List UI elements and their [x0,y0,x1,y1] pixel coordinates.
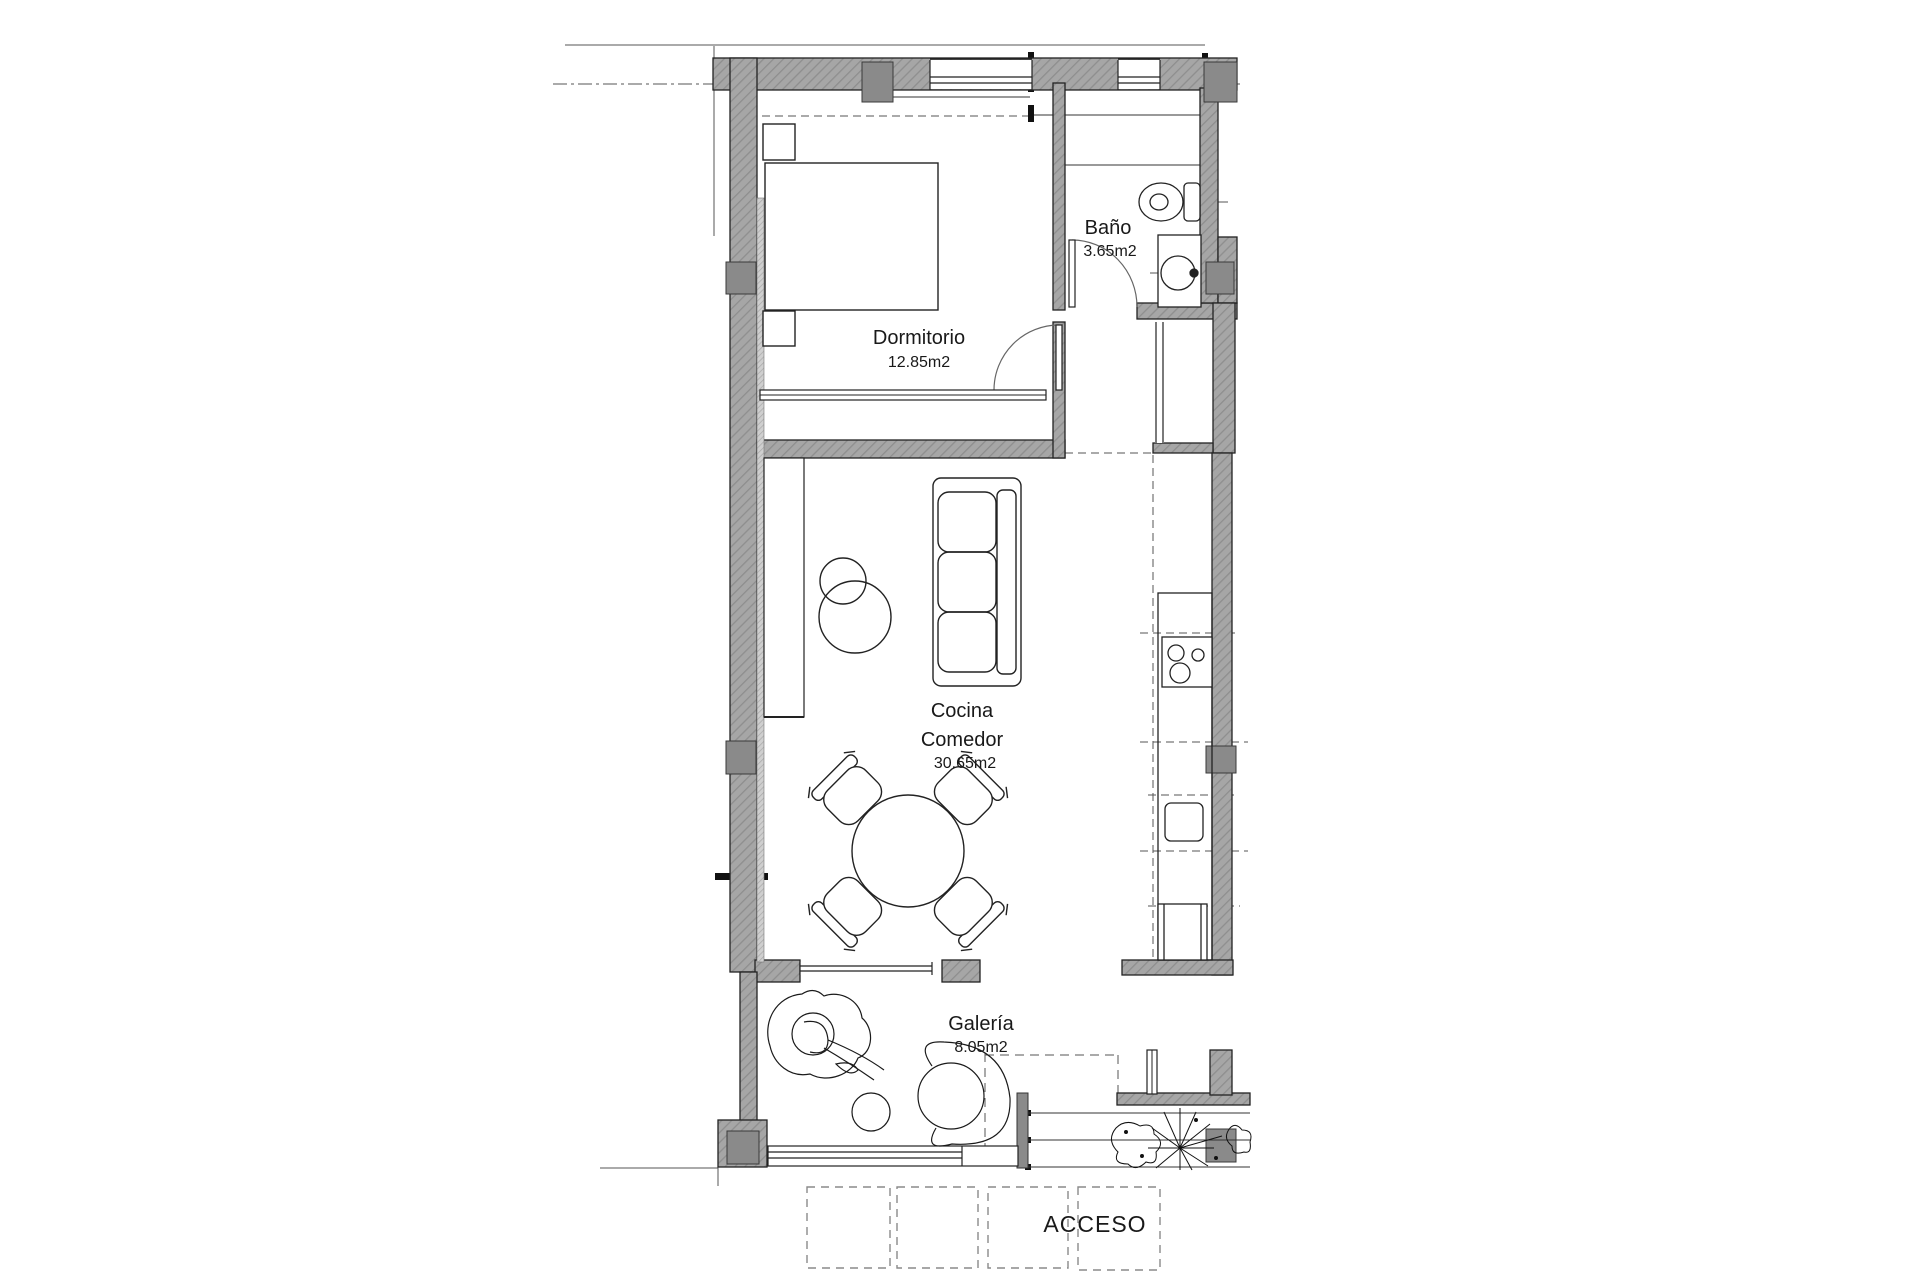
bedroom-door [994,325,1062,390]
label-galeria-area: 8.05m2 [954,1039,1007,1056]
bathroom-fixtures [1139,183,1201,307]
kitchen-sink [1165,803,1203,841]
wall-left [730,58,757,972]
pouf [852,1093,890,1131]
wall-galeria-top-right [942,960,980,982]
porch-post [1147,1050,1157,1094]
wall-kitchen-right [1212,453,1232,975]
column [1204,62,1237,102]
sofa [933,478,1021,686]
label-galeria: Galería [948,1013,1014,1035]
nightstand [763,311,795,346]
floor-plan-drawing: Dormitorio 12.85m2 Baño 3.65m2 Cocina Co… [0,0,1920,1280]
window-bath-top [1118,59,1160,90]
wardrobe [760,390,1046,400]
label-cocina-area: 30.65m2 [934,755,996,772]
window-galeria-salon [800,962,932,975]
sideboard [764,458,804,717]
column [1206,746,1236,773]
column [726,741,756,774]
label-cocina: Cocina [931,700,994,722]
window-bedroom-top [930,59,1032,90]
dining-set [804,747,1013,956]
paving-tile [807,1187,890,1268]
wall-galeria-top-left [755,960,800,982]
coffee-table [819,581,891,653]
wall-kitchen-bottom [1122,960,1233,975]
kitchen-appliance [1158,904,1207,960]
wall-galeria-left [740,972,757,1124]
label-dormitorio-area: 12.85m2 [888,354,950,371]
column [1206,262,1234,294]
column [727,1131,759,1164]
paving-tile [897,1187,978,1268]
living-furniture [764,458,1021,717]
floor-plan-page: Dormitorio 12.85m2 Baño 3.65m2 Cocina Co… [0,0,1920,1280]
label-dormitorio: Dormitorio [873,327,965,349]
column [862,62,893,102]
window-shaft [1155,322,1164,443]
kitchen [1158,593,1212,960]
window-galeria-bottom [768,1146,1018,1166]
room-labels: Dormitorio 12.85m2 Baño 3.65m2 Cocina Co… [873,217,1147,1237]
dining-table [852,795,964,907]
potted-plant [768,991,884,1081]
label-bano-area: 3.65m2 [1083,243,1136,260]
column [726,262,756,294]
label-comedor: Comedor [921,729,1004,751]
round-chair [918,1042,1010,1146]
toilet [1139,183,1200,221]
bed [765,163,938,310]
cooktop [1162,637,1212,687]
nightstand [763,124,795,160]
wall-porch-column [1210,1050,1232,1095]
wall-shaft-sill [1153,443,1213,453]
label-acceso: ACCESO [1043,1211,1146,1237]
label-bano: Baño [1085,217,1132,239]
wall-shaft-right [1213,303,1235,453]
wall-bath-left [1053,83,1065,310]
wall-galeria-right [1017,1093,1028,1168]
washbasin [1158,235,1201,307]
wall-bedroom-divider [757,440,1065,458]
